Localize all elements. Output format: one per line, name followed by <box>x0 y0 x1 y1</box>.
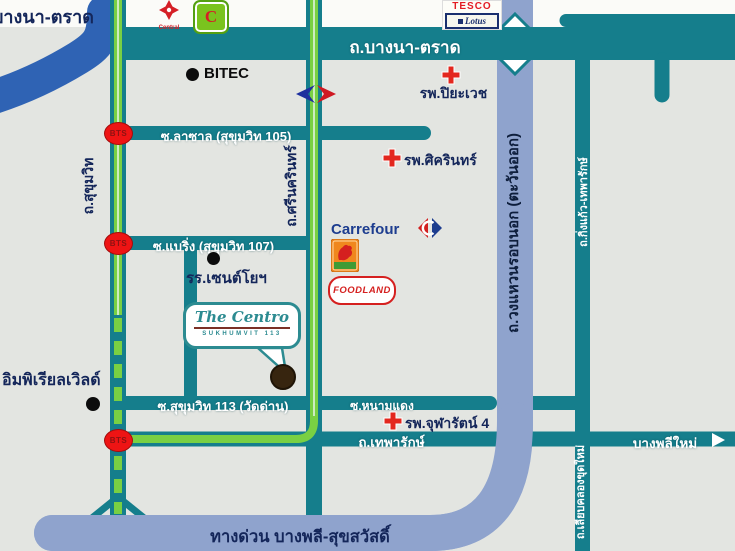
hospital-cross-icon <box>383 411 403 436</box>
central-emblem-icon <box>150 0 188 20</box>
imperial-world-label: อิมพิเรียลเวิลด์ <box>2 368 101 393</box>
lotus-box: Lotus <box>445 13 499 29</box>
carrefour-logo-icon <box>417 216 443 240</box>
the-centro-callout: The Centro SUKHUMVIT 113 <box>183 302 301 349</box>
sikarin-hospital-label: รพ.ศิครินทร์ <box>404 150 477 172</box>
chularat-hospital-label: รพ.จุฬารัตน์ 4 <box>405 413 489 435</box>
central-logo-text: Central <box>150 25 188 31</box>
hospital-cross-icon <box>382 148 402 173</box>
sukhumvit-label: ถ.สุขุมวิท <box>78 126 100 246</box>
bitec-dot <box>186 68 199 81</box>
imperial-world-dot <box>86 397 100 411</box>
project-subtitle: SUKHUMVIT 113 <box>186 331 298 337</box>
khlongkhutmai-label: ถ.เลียบคลองขุดใหม่ <box>571 427 589 551</box>
carrefour-label: Carrefour <box>331 221 399 238</box>
piyavate-hospital-label: รพ.ปิยะเวช <box>406 83 501 105</box>
bts-station-marker: BTS <box>104 429 133 452</box>
tesco-text: TESCO <box>452 1 491 13</box>
callout-rule <box>194 327 290 329</box>
direction-arrow-icon <box>712 433 725 447</box>
project-name: The Centro <box>186 307 298 327</box>
foodland-logo: FOODLAND <box>328 276 396 305</box>
corner-road-label: บางนา-ตราด <box>0 2 94 31</box>
tesco-lotus-logo: TESCO Lotus <box>442 0 502 30</box>
bitec-label: BITEC <box>204 65 249 82</box>
srinakarin-label: ถ.ศรีนครินทร์ <box>281 116 303 256</box>
st-joseph-school-label: รร.เซนต์โยฯ <box>186 266 267 290</box>
red-lion-store-logo <box>331 239 359 272</box>
map-canvas: บางนา-ตราด Central C TESCO Lotus ถ.บางนา… <box>0 0 735 551</box>
lotus-square-icon <box>458 19 463 24</box>
bangna-trad-label: ถ.บางนา-ตราด <box>325 34 485 61</box>
bts-station-marker: BTS <box>104 122 133 145</box>
lotus-text: Lotus <box>465 16 486 26</box>
foodland-text: FOODLAND <box>333 285 391 296</box>
green-c-logo: C <box>193 0 229 34</box>
green-c-letter: C <box>205 7 217 27</box>
outer-ring-label: ถ.วงแหวนรอบนอก (ตะวันออก) <box>501 93 525 373</box>
interchange-marker-icon <box>296 84 336 104</box>
bts-station-marker: BTS <box>104 232 133 255</box>
sukhumvit113-label: ซ.สุขุมวิท 113 (วัดด่าน) <box>143 396 303 417</box>
bangphlimai-label: บางพลีใหม่ <box>620 432 710 454</box>
kingkaew-label: ถ.กิ่งแก้ว-เทพารักษ์ <box>574 127 592 277</box>
project-location-marker <box>270 364 296 390</box>
central-logo: Central <box>150 0 188 27</box>
school-dot <box>207 252 220 265</box>
expressway-label: ทางด่วน บางพลี-สุขสวัสดิ์ <box>190 524 410 550</box>
